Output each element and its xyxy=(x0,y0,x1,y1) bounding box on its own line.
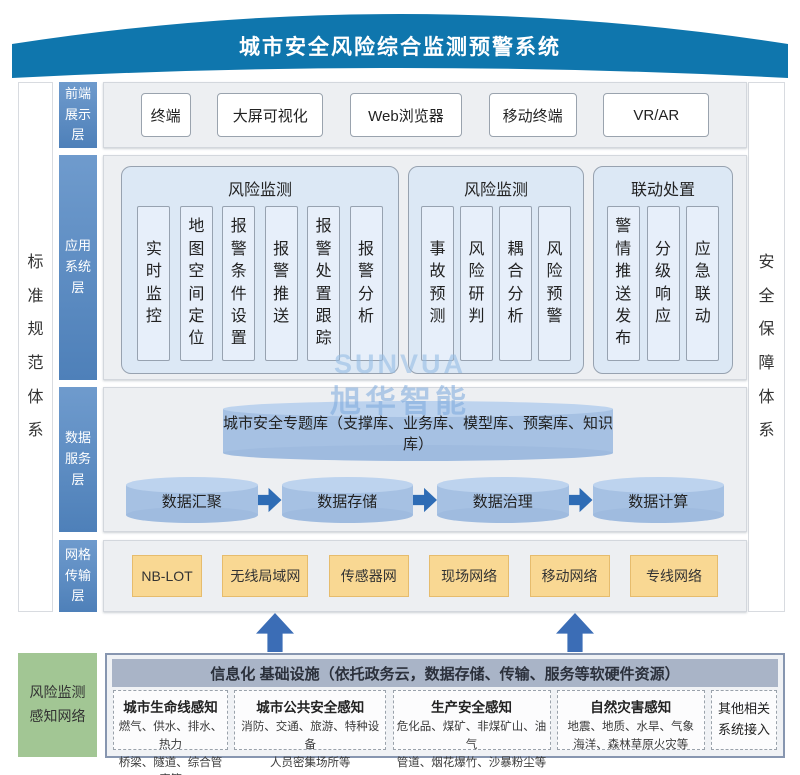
security-assurance-bar: 安全保障体系 xyxy=(748,82,785,612)
up-arrow-icon xyxy=(556,613,594,652)
page-title: 城市安全风险综合监测预警系统 xyxy=(0,31,800,61)
app-item: 报警处置跟踪 xyxy=(307,206,340,361)
network-layer-row: NB-LOT 无线局域网 传感器网 现场网络 移动网络 专线网络 xyxy=(103,540,747,612)
app-group-risk-analysis: 风险监测 事故预测 风险研判 耦合分析 风险预警 xyxy=(408,166,584,374)
sense-box-production-safety: 生产安全感知 危化品、煤矿、非煤矿山、油气 管道、烟花爆竹、沙暴粉尘等 xyxy=(393,690,551,750)
sense-box-other-systems: 其他相关系统接入 xyxy=(711,690,777,750)
network-item-mobile: 移动网络 xyxy=(530,555,610,597)
right-arrow-icon xyxy=(413,487,437,514)
sense-box-public-safety: 城市公共安全感知 消防、交通、旅游、特种设备 人员密集场所等 xyxy=(234,690,386,750)
perception-network-label-box: 风险监测 感知网络 xyxy=(18,653,97,757)
app-group-risk-monitoring: 风险监测 实时监控 地图空间定位 报警条件设置 报警推送 报警处置跟踪 报警分析 xyxy=(121,166,399,374)
front-item-big-screen: 大屏可视化 xyxy=(217,93,323,137)
network-item-wlan: 无线局域网 xyxy=(222,555,308,597)
app-item: 实时监控 xyxy=(137,206,170,361)
app-item: 应急联动 xyxy=(686,206,719,361)
layer-label-application: 应用系统层 xyxy=(59,155,97,380)
front-item-web-browser: Web浏览器 xyxy=(350,93,462,137)
layer-label-front-display: 前端展示层 xyxy=(59,82,97,148)
group-title: 风险监测 xyxy=(409,167,583,202)
pipeline-cylinder: 数据存储 xyxy=(282,477,414,523)
data-service-layer-row: 城市安全专题库（支撑库、业务库、模型库、预案库、知识库） 数据汇聚 数据存储 数… xyxy=(103,387,747,532)
app-item: 警情推送发布 xyxy=(607,206,640,361)
app-item: 风险研判 xyxy=(460,206,493,361)
app-item: 报警条件设置 xyxy=(222,206,255,361)
layer-label-network: 网格传输层 xyxy=(59,540,97,612)
sense-box-city-lifeline: 城市生命线感知 燃气、供水、排水、热力 桥梁、隧道、综合管廊等 xyxy=(113,690,228,750)
app-item: 地图空间定位 xyxy=(180,206,213,361)
pipeline-cylinder: 数据治理 xyxy=(437,477,569,523)
app-item: 耦合分析 xyxy=(499,206,532,361)
network-item-sensor: 传感器网 xyxy=(329,555,409,597)
front-item-terminal: 终端 xyxy=(141,93,191,137)
network-item-onsite: 现场网络 xyxy=(429,555,509,597)
app-group-linkage-disposal: 联动处置 警情推送发布 分级响应 应急联动 xyxy=(593,166,733,374)
app-item: 事故预测 xyxy=(421,206,454,361)
up-arrow-icon xyxy=(256,613,294,652)
app-item: 风险预警 xyxy=(538,206,571,361)
network-item-nb-lot: NB-LOT xyxy=(132,555,202,597)
network-item-dedicated: 专线网络 xyxy=(630,555,718,597)
right-arrow-icon xyxy=(258,487,282,514)
standards-system-label: 标准规范体系 xyxy=(27,246,44,448)
data-pipeline: 数据汇聚 数据存储 数据治理 数据计算 xyxy=(104,476,746,524)
app-item: 分级响应 xyxy=(647,206,680,361)
infrastructure-section: 信息化 基础设施（依托政务云，数据存储、传输、服务等软硬件资源） 城市生命线感知… xyxy=(105,653,785,758)
security-assurance-label: 安全保障体系 xyxy=(758,246,775,448)
front-display-layer-row: 终端 大屏可视化 Web浏览器 移动终端 VR/AR xyxy=(103,82,747,148)
application-layer-row: 风险监测 实时监控 地图空间定位 报警条件设置 报警推送 报警处置跟踪 报警分析… xyxy=(103,155,747,380)
app-item: 报警推送 xyxy=(265,206,298,361)
group-title: 联动处置 xyxy=(594,167,732,202)
system-architecture-diagram: 城市安全风险综合监测预警系统 标准规范体系 安全保障体系 前端展示层 应用系统层… xyxy=(0,0,800,775)
group-title: 风险监测 xyxy=(122,167,398,202)
repository-cylinder: 城市安全专题库（支撑库、业务库、模型库、预案库、知识库） xyxy=(223,401,613,461)
right-arrow-icon xyxy=(569,487,593,514)
repository-label: 城市安全专题库（支撑库、业务库、模型库、预案库、知识库） xyxy=(223,412,613,454)
pipeline-cylinder: 数据汇聚 xyxy=(126,477,258,523)
pipeline-cylinder: 数据计算 xyxy=(593,477,725,523)
infrastructure-header: 信息化 基础设施（依托政务云，数据存储、传输、服务等软硬件资源） xyxy=(112,659,778,687)
layer-label-data-service: 数据服务层 xyxy=(59,387,97,532)
front-item-mobile-terminal: 移动终端 xyxy=(489,93,577,137)
sense-box-natural-disaster: 自然灾害感知 地震、地质、水旱、气象 海洋、森林草原火灾等 xyxy=(557,690,705,750)
standards-system-bar: 标准规范体系 xyxy=(18,82,53,612)
front-item-vr-ar: VR/AR xyxy=(603,93,709,137)
app-item: 报警分析 xyxy=(350,206,383,361)
